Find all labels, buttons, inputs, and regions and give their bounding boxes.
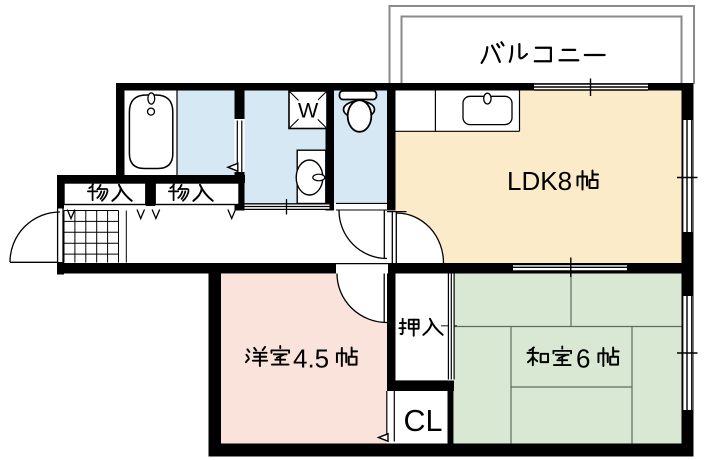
- svg-text:W: W: [298, 99, 319, 123]
- svg-text:6: 6: [576, 344, 590, 374]
- svg-text:CL: CL: [404, 404, 443, 438]
- svg-text:LDK8: LDK8: [507, 166, 572, 196]
- svg-text:4.5: 4.5: [293, 344, 329, 374]
